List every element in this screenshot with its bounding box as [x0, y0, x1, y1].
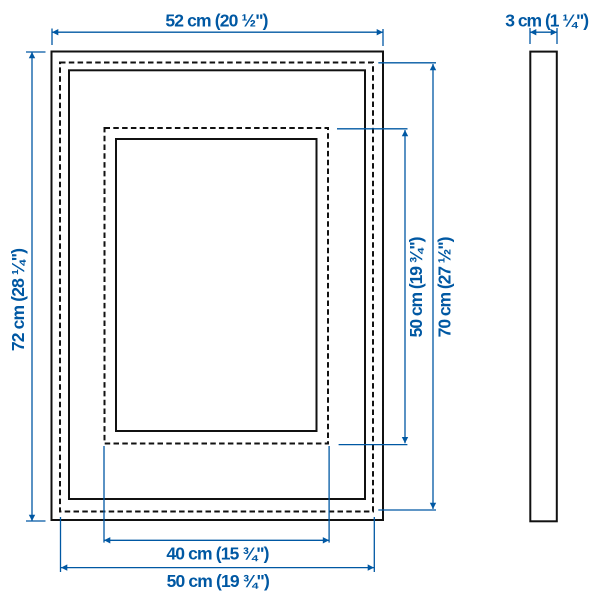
svg-text:50 cm (19 ¾"): 50 cm (19 ¾"): [406, 237, 426, 337]
svg-text:40 cm (15 ¾"): 40 cm (15 ¾"): [166, 544, 268, 564]
svg-text:70 cm (27 ½"): 70 cm (27 ½"): [435, 237, 455, 337]
svg-text:52 cm (20 ½"): 52 cm (20 ½"): [165, 11, 267, 31]
svg-text:72 cm (28 ¼"): 72 cm (28 ¼"): [8, 249, 28, 351]
svg-text:50 cm (19 ¾"): 50 cm (19 ¾"): [167, 571, 269, 591]
svg-text:3 cm (1 ¼"): 3 cm (1 ¼"): [505, 11, 588, 31]
